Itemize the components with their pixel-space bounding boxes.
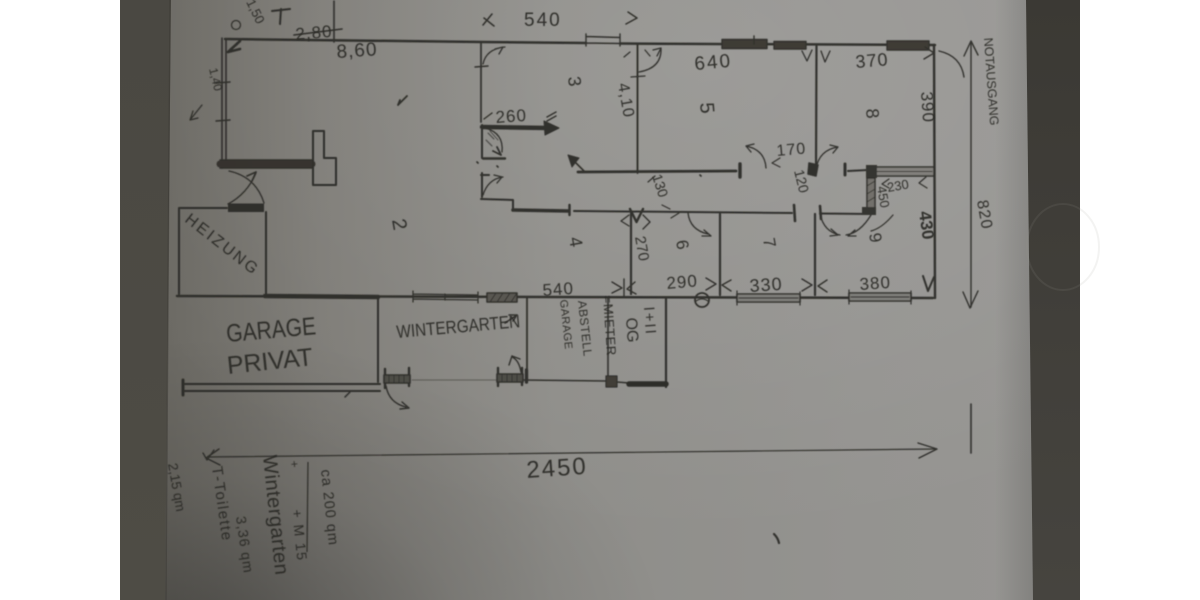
svg-text:540: 540 — [524, 10, 562, 31]
svg-text:430: 430 — [915, 210, 938, 241]
svg-text:290: 290 — [666, 271, 699, 293]
svg-text:390: 390 — [917, 91, 938, 124]
svg-text:370: 370 — [855, 49, 890, 72]
svg-text:5: 5 — [695, 102, 718, 115]
svg-text:260: 260 — [495, 106, 528, 127]
svg-text:540: 540 — [542, 279, 575, 300]
svg-text:640: 640 — [694, 51, 733, 75]
svg-text:2450: 2450 — [526, 453, 589, 484]
svg-text:170: 170 — [776, 140, 807, 160]
svg-text:+: + — [287, 460, 302, 468]
svg-text:330: 330 — [749, 274, 783, 296]
svg-text:3: 3 — [564, 75, 585, 87]
svg-text:8,60: 8,60 — [336, 39, 378, 63]
svg-text:I+II: I+II — [640, 306, 659, 336]
svg-text:OG: OG — [622, 317, 641, 343]
svg-text:8: 8 — [862, 108, 883, 120]
svg-text:2,80: 2,80 — [295, 22, 334, 44]
svg-text:380: 380 — [859, 273, 892, 294]
